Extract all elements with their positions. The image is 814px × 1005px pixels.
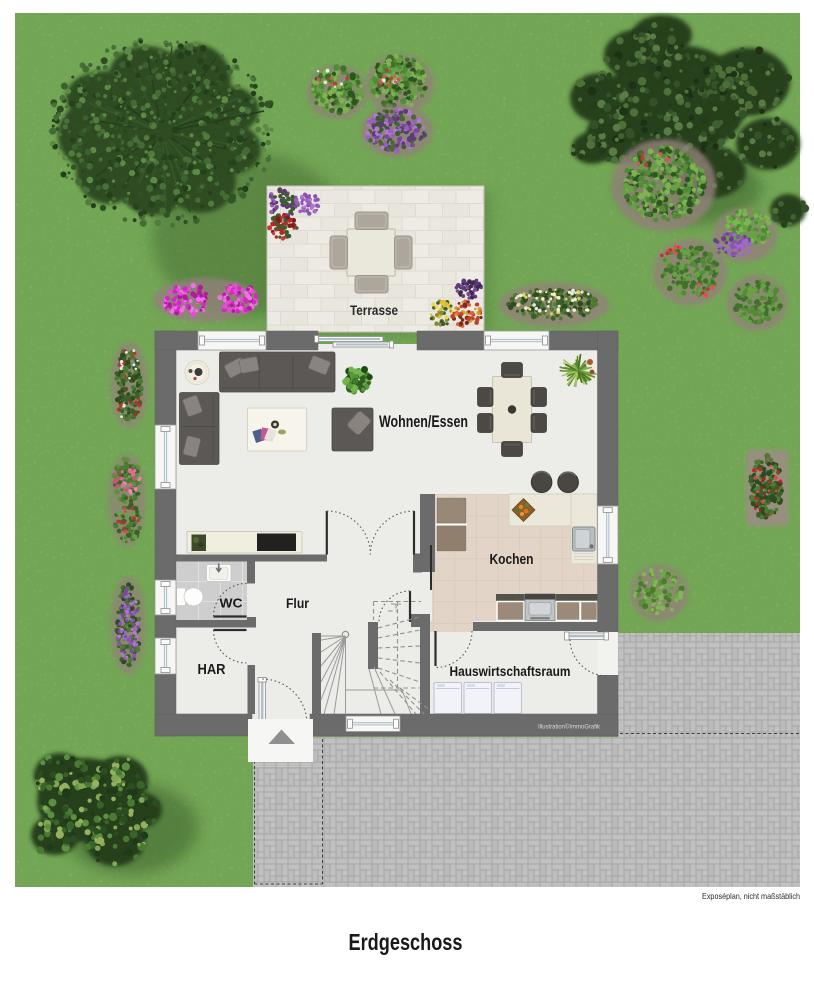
svg-text:Wohnen/Essen: Wohnen/Essen	[379, 412, 468, 431]
svg-text:Illustration©ImmoGrafik: Illustration©ImmoGrafik	[538, 723, 601, 731]
svg-text:Flur: Flur	[286, 595, 309, 611]
svg-text:Hauswirtschaftsraum: Hauswirtschaftsraum	[450, 663, 571, 679]
svg-text:Kochen: Kochen	[490, 551, 534, 568]
svg-text:Erdgeschoss: Erdgeschoss	[349, 929, 463, 955]
svg-text:HAR: HAR	[198, 661, 226, 678]
svg-text:Terrasse: Terrasse	[350, 302, 398, 318]
svg-text:WC: WC	[220, 596, 244, 611]
svg-text:Exposéplan, nicht maßstäblich: Exposéplan, nicht maßstäblich	[702, 891, 800, 901]
